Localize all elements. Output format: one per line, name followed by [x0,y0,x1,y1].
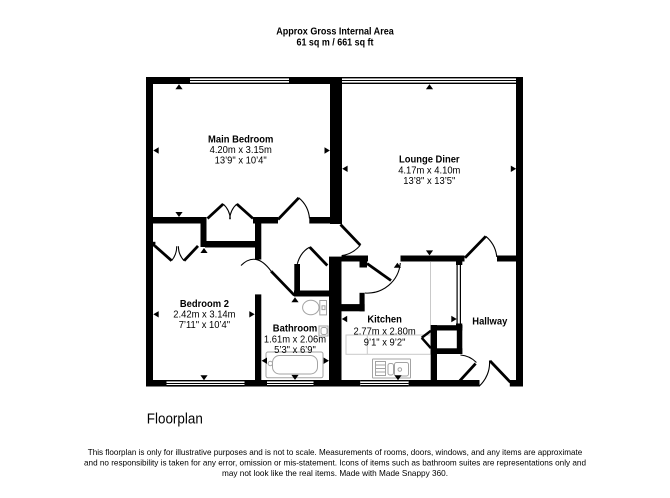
svg-text:This floorplan is only for ill: This floorplan is only for illustrative … [88,447,583,457]
svg-text:and no responsibility is taken: and no responsibility is taken for any e… [84,458,586,468]
svg-text:may not look like the real ite: may not look like the real items. Made w… [222,468,448,478]
svg-text:13’9" x 10’4": 13’9" x 10’4" [215,155,267,167]
svg-text:Kitchen: Kitchen [367,314,402,326]
svg-text:9’1" x 9’2": 9’1" x 9’2" [364,337,406,349]
svg-text:5’3" x 6’9": 5’3" x 6’9" [274,344,316,356]
svg-text:61 sq m / 661 sq ft: 61 sq m / 661 sq ft [297,38,375,49]
svg-text:13’8" x 13’5": 13’8" x 13’5" [403,175,455,187]
svg-text:Hallway: Hallway [472,315,507,327]
svg-text:7’11" x 10’4": 7’11" x 10’4" [179,319,231,331]
svg-text:Floorplan: Floorplan [147,411,203,428]
svg-text:Approx Gross Internal Area: Approx Gross Internal Area [276,27,394,38]
